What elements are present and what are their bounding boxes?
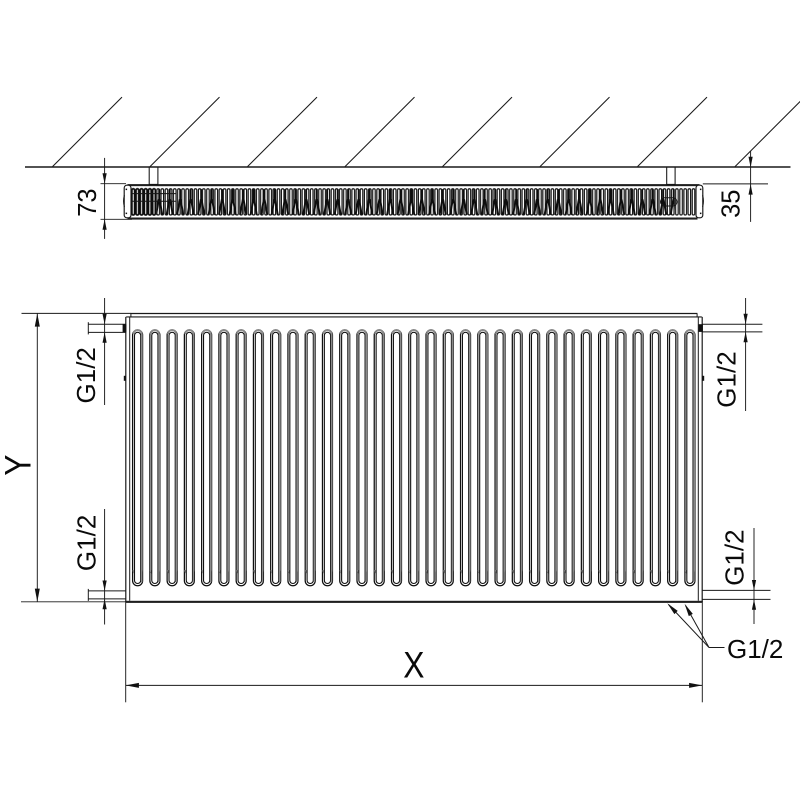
svg-text:G1/2: G1/2 — [71, 347, 101, 403]
svg-text:G1/2: G1/2 — [711, 351, 741, 407]
svg-text:G1/2: G1/2 — [71, 515, 101, 571]
svg-text:Y: Y — [0, 455, 38, 476]
svg-text:G1/2: G1/2 — [719, 529, 749, 585]
svg-text:35: 35 — [718, 190, 746, 218]
svg-text:X: X — [403, 644, 424, 685]
svg-text:G1/2: G1/2 — [727, 634, 783, 664]
svg-text:73: 73 — [74, 188, 102, 216]
